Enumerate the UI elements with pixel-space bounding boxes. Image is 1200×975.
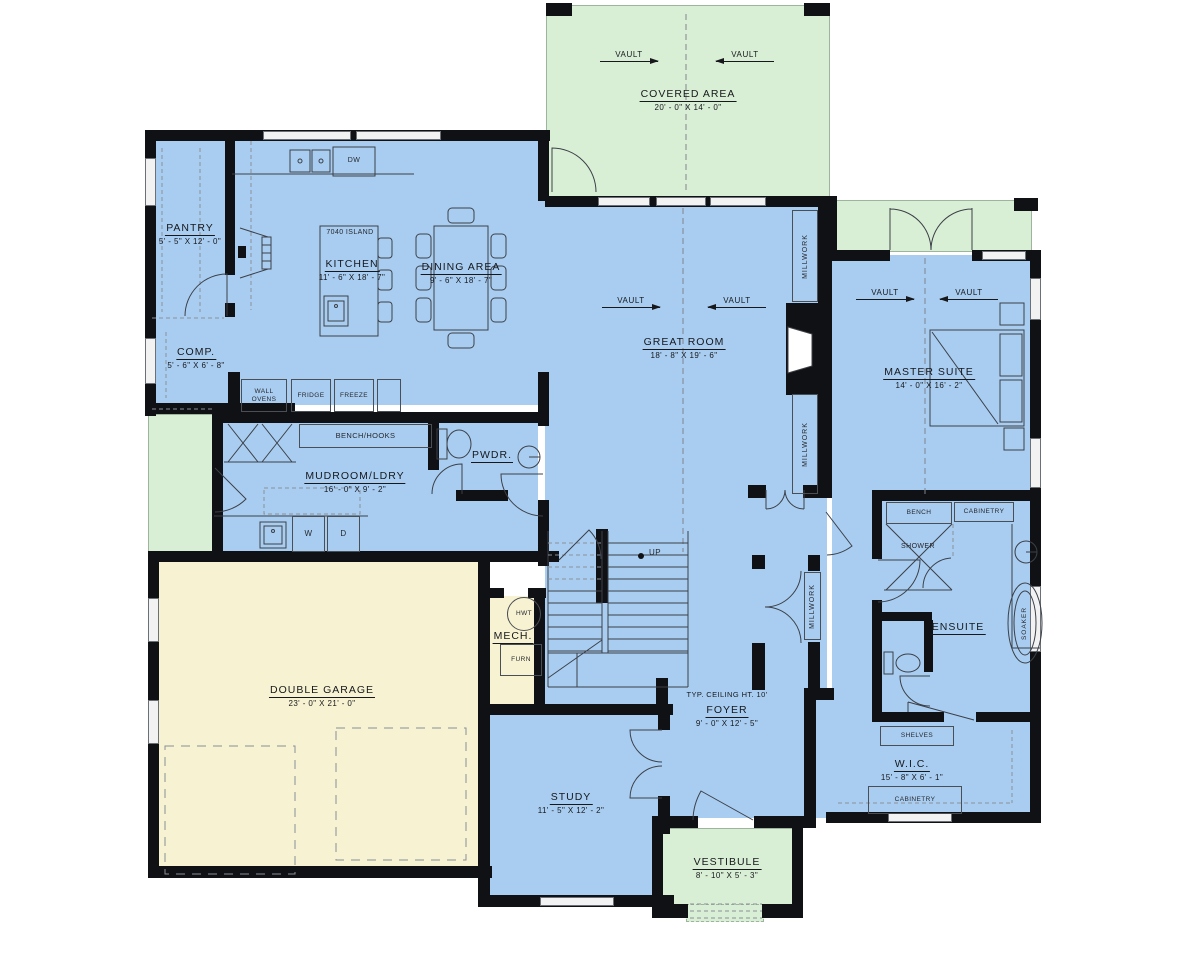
label-mudroom: MUDROOM/LDRY 16' - 0" X 9' - 2" — [304, 466, 405, 494]
millwork-label: MILLWORK — [809, 584, 816, 629]
study-dims: 11' - 5" X 12' - 2" — [538, 806, 604, 815]
vault-arrow-line — [716, 61, 774, 62]
mudroom-dims: 16' - 0" X 9' - 2" — [304, 485, 405, 494]
furnace: FURN — [500, 644, 542, 676]
island-label: 7040 ISLAND — [326, 229, 373, 236]
fridge-label: FRIDGE — [298, 392, 325, 399]
label-comp: COMP. 5' - 6" X 6' - 8" — [167, 342, 224, 370]
vestibule-name: VESTIBULE — [693, 856, 762, 870]
label-ensuite: ENSUITE — [931, 617, 986, 635]
soaker-label: SOAKER — [1022, 606, 1029, 639]
fireplace-opening — [788, 327, 812, 373]
shower-label: SHOWER — [901, 543, 935, 550]
vestibule-step-dashes — [690, 904, 762, 918]
vault-label: VAULT — [955, 288, 983, 297]
mech-name: MECH. — [493, 630, 534, 644]
wall-ovens: WALL OVENS — [241, 379, 287, 412]
dw-label: DW — [348, 157, 360, 165]
pantry-name: PANTRY — [165, 222, 215, 236]
covered-area-name: COVERED AREA — [640, 88, 737, 102]
ensuite-name: ENSUITE — [931, 621, 986, 635]
label-dining: DINING AREA 9' - 6" X 18' - 7" — [421, 257, 502, 285]
label-pwdr: PWDR. — [471, 445, 513, 463]
mudroom-closet-bifold — [224, 424, 296, 462]
stairs — [548, 531, 688, 687]
washer-label: W — [305, 529, 313, 538]
vault-arrow-line — [708, 307, 766, 308]
vault-label: VAULT — [723, 296, 751, 305]
bench-label: BENCH — [907, 509, 932, 516]
millwork-label: MILLWORK — [802, 422, 809, 467]
ensuite-bench: BENCH — [886, 502, 952, 524]
master-suite-name: MASTER SUITE — [883, 366, 975, 380]
pantry-dims: 5' - 5" X 12' - 0" — [159, 237, 221, 246]
label-study: STUDY 11' - 5" X 12' - 2" — [538, 787, 604, 815]
vault-arrow: VAULT — [708, 296, 766, 308]
foyer-name: FOYER — [705, 704, 748, 718]
freezer: FREEZE — [334, 379, 374, 412]
comp-dims: 5' - 6" X 6' - 8" — [167, 361, 224, 370]
label-great-room: GREAT ROOM 18' - 8" X 19' - 6" — [643, 332, 726, 360]
comp-name: COMP. — [176, 346, 216, 360]
millwork-label: MILLWORK — [802, 234, 809, 279]
master-suite-dims: 14' - 0" X 16' - 2" — [883, 381, 975, 390]
garage-dims: 23' - 0" X 21' - 0" — [269, 699, 375, 708]
washer: W — [292, 516, 325, 552]
ensuite-cabinetry: CABINETRY — [954, 502, 1014, 522]
dryer: D — [327, 516, 360, 552]
furn-label: FURN — [511, 656, 531, 663]
label-wic: W.I.C. 15' - 8" X 6' - 1" — [881, 754, 943, 782]
dining-dims: 9' - 6" X 18' - 7" — [421, 276, 502, 285]
covered-area-dims: 20' - 0" X 14' - 0" — [640, 103, 737, 112]
vault-arrow-line — [602, 307, 660, 308]
label-kitchen: KITCHEN 11' - 6" X 18' - 7" — [319, 254, 385, 282]
dryer-label: D — [340, 529, 346, 538]
vault-label: VAULT — [871, 288, 899, 297]
soaker-tub-label-box: SOAKER — [1013, 598, 1037, 648]
vault-arrow: VAULT — [856, 288, 914, 300]
vault-arrow-line — [940, 299, 998, 300]
vault-arrow: VAULT — [602, 296, 660, 308]
millwork-upper: MILLWORK — [792, 210, 818, 302]
label-vestibule: VESTIBULE 8' - 10" X 5' - 3" — [693, 852, 762, 880]
wic-cabinetry: CABINETRY — [868, 786, 962, 814]
millwork-lower: MILLWORK — [792, 394, 818, 494]
vault-label: VAULT — [615, 50, 643, 59]
mudroom-name: MUDROOM/LDRY — [304, 470, 405, 484]
linework-layer — [0, 0, 1200, 975]
up-label: UP — [649, 548, 661, 557]
bench-hooks-label: BENCH/HOOKS — [336, 432, 396, 441]
cabinetry-label: CABINETRY — [895, 796, 936, 803]
hwt-label: HWT — [516, 610, 532, 617]
vault-arrow-line — [600, 61, 658, 62]
vault-arrow-line — [856, 299, 914, 300]
vault-arrow: VAULT — [600, 50, 658, 62]
pwdr-name: PWDR. — [471, 449, 513, 463]
great-room-dims: 18' - 8" X 19' - 6" — [643, 351, 726, 360]
millwork-hall: MILLWORK — [804, 572, 821, 640]
label-garage: DOUBLE GARAGE 23' - 0" X 21' - 0" — [269, 680, 375, 708]
garage-name: DOUBLE GARAGE — [269, 684, 375, 698]
dining-name: DINING AREA — [421, 261, 502, 275]
vault-arrow: VAULT — [940, 288, 998, 300]
wic-dims: 15' - 8" X 6' - 1" — [881, 773, 943, 782]
freeze-label: FREEZE — [340, 392, 368, 399]
wic-shelves: SHELVES — [880, 726, 954, 746]
wall-ovens-label: WALL OVENS — [249, 388, 279, 403]
fridge: FRIDGE — [291, 379, 331, 412]
label-mech: MECH. — [493, 626, 534, 644]
study-name: STUDY — [550, 791, 593, 805]
wic-name: W.I.C. — [894, 758, 931, 772]
label-master-suite: MASTER SUITE 14' - 0" X 16' - 2" — [883, 362, 975, 390]
vault-arrow: VAULT — [716, 50, 774, 62]
kitchen-name: KITCHEN — [324, 258, 379, 272]
shelves-label: SHELVES — [901, 732, 933, 739]
foyer-note: TYP. CEILING HT. 10' — [687, 690, 768, 699]
dishwasher: DW — [333, 147, 375, 176]
vault-label: VAULT — [617, 296, 645, 305]
kitchen-dims: 11' - 6" X 18' - 7" — [319, 273, 385, 282]
vault-label: VAULT — [731, 50, 759, 59]
bench-hooks: BENCH/HOOKS — [299, 424, 432, 448]
label-foyer: TYP. CEILING HT. 10' FOYER 9' - 0" X 12'… — [687, 690, 768, 728]
door-swings — [185, 148, 974, 820]
vestibule-dims: 8' - 10" X 5' - 3" — [693, 871, 762, 880]
label-pantry: PANTRY 5' - 5" X 12' - 0" — [159, 218, 221, 246]
garage-stalls — [165, 728, 466, 874]
cabinetry-label: CABINETRY — [964, 508, 1005, 515]
great-room-name: GREAT ROOM — [643, 336, 726, 350]
foyer-dims: 9' - 0" X 12' - 5" — [687, 719, 768, 728]
label-covered-area: COVERED AREA 20' - 0" X 14' - 0" — [640, 84, 737, 112]
floor-plan: DW WALL OVENS FRIDGE FREEZE BENCH/HOOKS … — [0, 0, 1200, 975]
tall-cabinet — [377, 379, 401, 412]
